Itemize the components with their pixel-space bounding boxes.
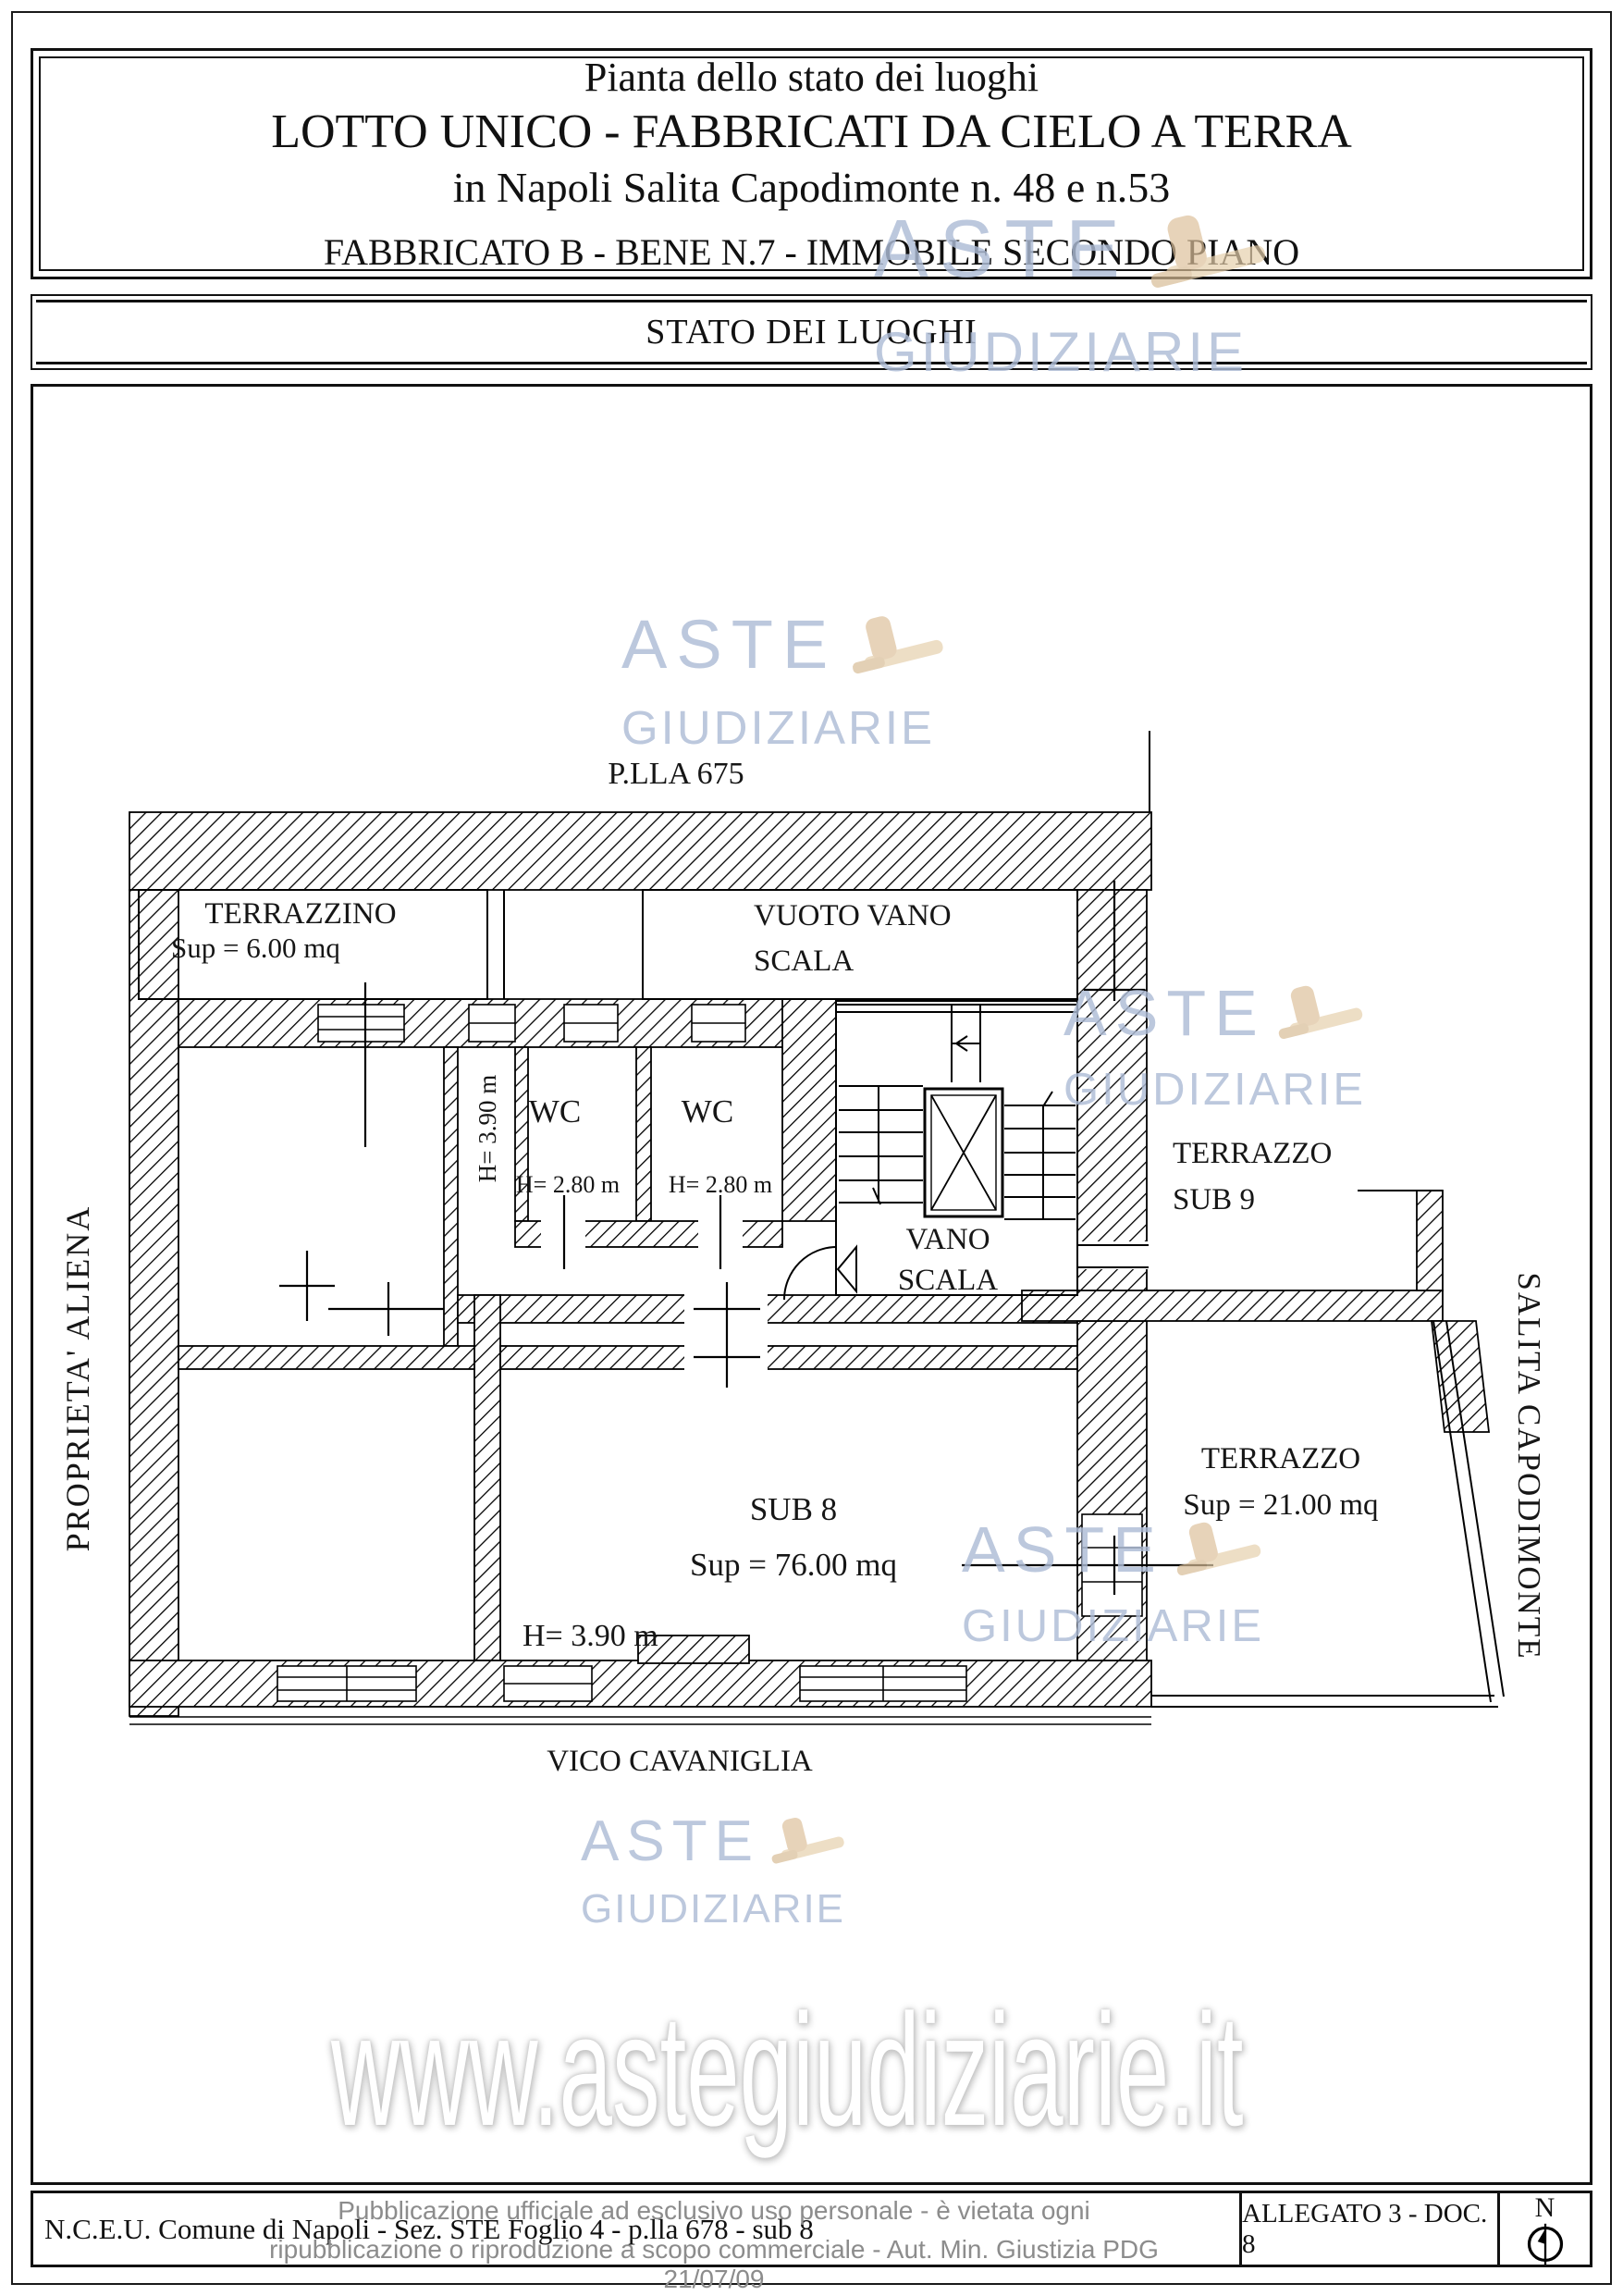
- vano-line1: VANO: [874, 1219, 1022, 1260]
- door-arc: [784, 1247, 837, 1300]
- vuoto-line2: SCALA: [754, 944, 952, 979]
- room-label-sub8: SUB 8 Sup = 76.00 mq: [655, 1482, 932, 1593]
- street-label-right: SALITA CAPODIMONTE: [1505, 1170, 1547, 1762]
- watermark-word-aste: ASTE: [874, 208, 1131, 290]
- gavel-icon: [1266, 981, 1391, 1062]
- terrazzo21-name: TERRAZZO: [1142, 1436, 1420, 1482]
- gavel-icon: [837, 611, 976, 698]
- wall-right-of-wc: [782, 999, 836, 1221]
- watermark-word-aste: ASTE: [962, 1517, 1164, 1582]
- street-label-bottom: VICO CAVANIGLIA: [495, 1745, 865, 1779]
- room-label-vuoto-vano-scala: VUOTO VANO SCALA: [754, 899, 952, 979]
- elevator: [925, 1089, 1002, 1216]
- street-label-left: PROPRIETA' ALIENA: [58, 1119, 105, 1637]
- disclaimer-line-2: ripubblicazione o riproduzione a scopo c…: [252, 2235, 1176, 2294]
- wall-left: [129, 890, 178, 1716]
- corridor-height-label: H= 3.90 m: [473, 1036, 501, 1221]
- watermark-word-giudiziarie: GIUDIZIARIE: [1064, 1068, 1391, 1113]
- wall-sub9-stub: [1417, 1191, 1443, 1290]
- watermark-word-giudiziarie: GIUDIZIARIE: [962, 1604, 1289, 1649]
- watermark-upper-center: ASTE GIUDIZIARIE: [621, 611, 976, 751]
- wall-wc-divider: [636, 1047, 651, 1221]
- watermark-plan-lower-right: ASTE GIUDIZIARIE: [962, 1517, 1289, 1649]
- terrazzo-sub9-line2: SUB 9: [1173, 1177, 1332, 1223]
- watermark-word-aste: ASTE: [581, 1813, 760, 1870]
- room-label-wc2: WC: [670, 1093, 744, 1130]
- watermark-word-aste: ASTE: [621, 611, 837, 679]
- gavel-icon: [760, 1813, 869, 1883]
- sub8-area: Sup = 76.00 mq: [655, 1537, 932, 1593]
- wc2-height: H= 2.80 m: [656, 1171, 785, 1199]
- wall-corridor-left: [444, 1047, 458, 1346]
- wc1-height: H= 2.80 m: [503, 1171, 633, 1199]
- wall-lowerleft-top: [178, 1346, 474, 1369]
- room-label-wc1: WC: [518, 1093, 592, 1130]
- wall-top: [129, 812, 1151, 890]
- stair-flight-left: [839, 1086, 923, 1204]
- watermark-word-giudiziarie: GIUDIZIARIE: [581, 1889, 869, 1930]
- terrazzino-name: TERRAZZINO: [171, 897, 430, 932]
- watermark-word-giudiziarie: GIUDIZIARIE: [874, 325, 1307, 380]
- floor-plan-drawing: [0, 0, 1623, 2296]
- document-page: { "header": { "line1": "Pianta dello sta…: [0, 0, 1623, 2296]
- vano-line2: SCALA: [874, 1260, 1022, 1301]
- terrazzino-area: Sup = 6.00 mq: [171, 932, 430, 965]
- window-band-1: [318, 1005, 404, 1042]
- room-label-terrazzo21: TERRAZZO Sup = 21.00 mq: [1142, 1436, 1420, 1528]
- terrazzo-sub9-line1: TERRAZZO: [1173, 1130, 1332, 1177]
- sub8-height: H= 3.90 m: [523, 1619, 658, 1654]
- watermark-top-right: ASTE GIUDIZIARIE: [874, 208, 1307, 380]
- disclaimer-line-1: Pubblicazione ufficiale ad esclusivo uso…: [252, 2196, 1176, 2226]
- wall-sub9-bottom: [1022, 1290, 1443, 1321]
- vuoto-line1: VUOTO VANO: [754, 899, 952, 933]
- sub8-name: SUB 8: [655, 1482, 932, 1537]
- wall-step-vertical: [474, 1295, 500, 1660]
- gavel-icon: [1131, 208, 1307, 319]
- room-label-terrazzino: TERRAZZINO Sup = 6.00 mq: [171, 897, 430, 965]
- gavel-icon: [1164, 1517, 1289, 1599]
- room-label-vano-scala: VANO SCALA: [874, 1219, 1022, 1301]
- door-leaf: [838, 1247, 856, 1291]
- watermark-plan-right: ASTE GIUDIZIARIE: [1064, 981, 1391, 1113]
- parcel-label: P.LLA 675: [537, 757, 815, 792]
- room-label-terrazzo-sub9: TERRAZZO SUB 9: [1173, 1130, 1332, 1223]
- watermark-word-giudiziarie: GIUDIZIARIE: [621, 704, 976, 751]
- wall-sub8-top: [500, 1346, 1077, 1369]
- watermark-url: www.astegiudiziarie.it: [331, 1991, 1244, 2150]
- watermark-bottom-center: ASTE GIUDIZIARIE: [581, 1813, 869, 1930]
- watermark-word-aste: ASTE: [1064, 981, 1266, 1045]
